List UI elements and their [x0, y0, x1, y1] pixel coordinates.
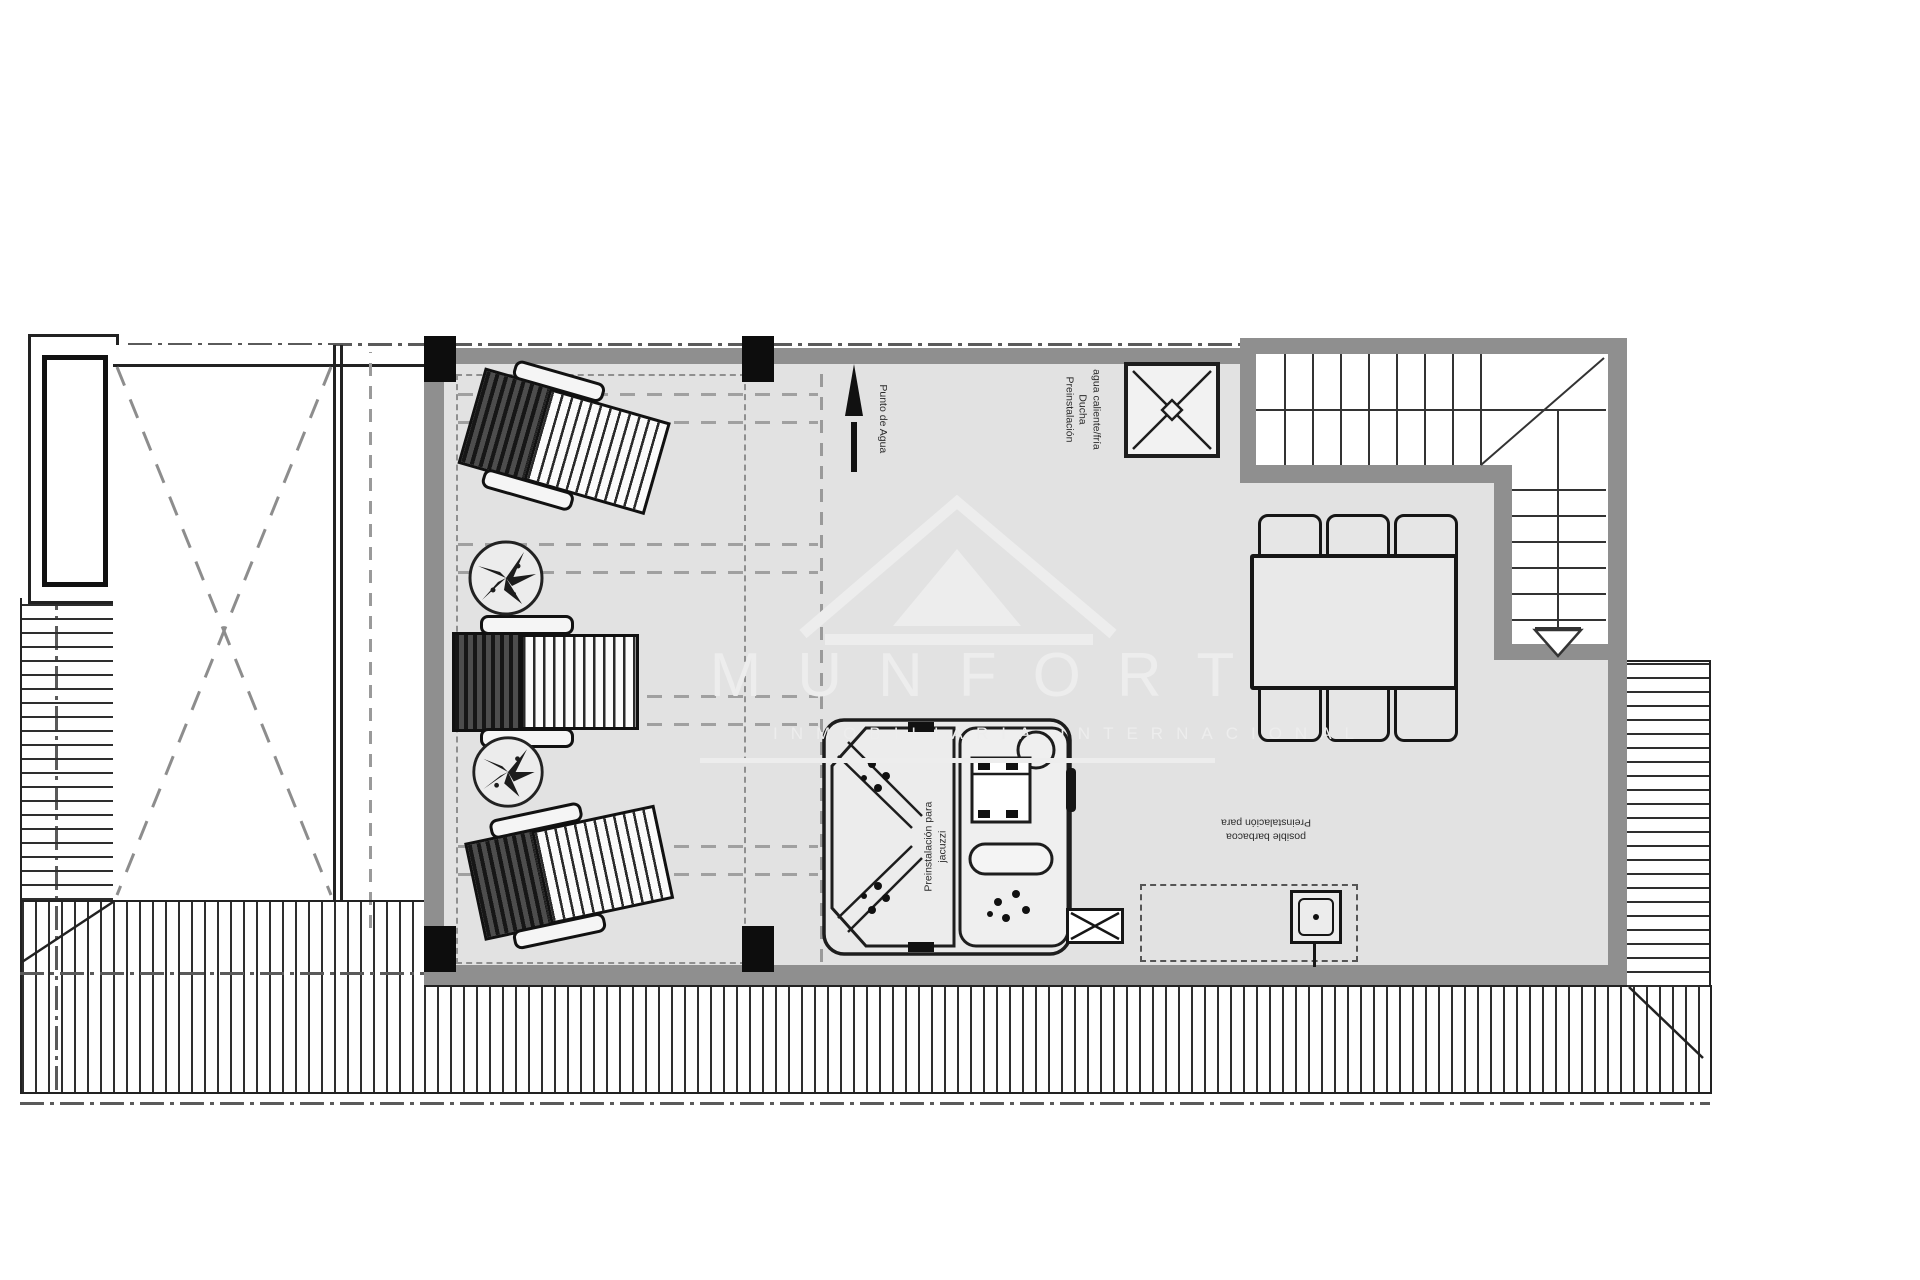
sun-lounger — [452, 632, 637, 724]
jacuzzi-label-line: Preinstalación para — [922, 757, 936, 937]
lounger-side-table — [480, 615, 574, 635]
shower-label-line: Preinstalación — [1062, 347, 1076, 471]
stair-down-arrow-icon — [1535, 630, 1581, 656]
shower-label-line: agua caliente/fría — [1089, 347, 1103, 471]
dining-chair — [1258, 684, 1322, 742]
lounger-seat — [520, 634, 639, 730]
dining-chair — [1394, 684, 1458, 742]
floor-plan-canvas: Punto de Agua agua caliente/fría Ducha P… — [0, 0, 1920, 1280]
pergola-column — [742, 336, 774, 382]
barbecue-label: posible barbacoa Preinstalación para — [1151, 815, 1381, 842]
pergola-column — [424, 926, 456, 972]
pergola-column — [424, 336, 456, 382]
jacuzzi-label-line: jacuzzi — [936, 757, 950, 937]
pergola-column — [742, 926, 774, 972]
barbecue-label-line: Preinstalación para — [1151, 815, 1381, 829]
jacuzzi-label: Preinstalación para jacuzzi — [922, 757, 949, 937]
drain-box-cross-icon — [1069, 911, 1121, 941]
barbecue-sink — [1290, 890, 1342, 944]
water-point-label: Punto de Agua — [875, 363, 889, 475]
water-point-arrow-icon — [840, 362, 868, 474]
lounger-backrest — [452, 632, 522, 732]
barbecue-sink-pipe — [1313, 941, 1316, 967]
plant-icon — [466, 538, 546, 618]
dining-chair — [1326, 684, 1390, 742]
plant-icon — [470, 734, 546, 810]
barbecue-sink-drain-icon — [1313, 914, 1319, 920]
roof-hip-lines — [0, 0, 1920, 1280]
shower-label-line: Ducha — [1075, 347, 1089, 471]
dining-table — [1250, 554, 1458, 690]
shower-tray-drain-icon — [1128, 366, 1216, 454]
drain-box — [1066, 908, 1124, 944]
barbecue-label-line: posible barbacoa — [1151, 829, 1381, 843]
shower-tray — [1124, 362, 1220, 458]
water-point-label-text: Punto de Agua — [877, 384, 889, 453]
shower-label: agua caliente/fría Ducha Preinstalación — [1062, 347, 1103, 471]
jacuzzi — [820, 716, 1092, 958]
